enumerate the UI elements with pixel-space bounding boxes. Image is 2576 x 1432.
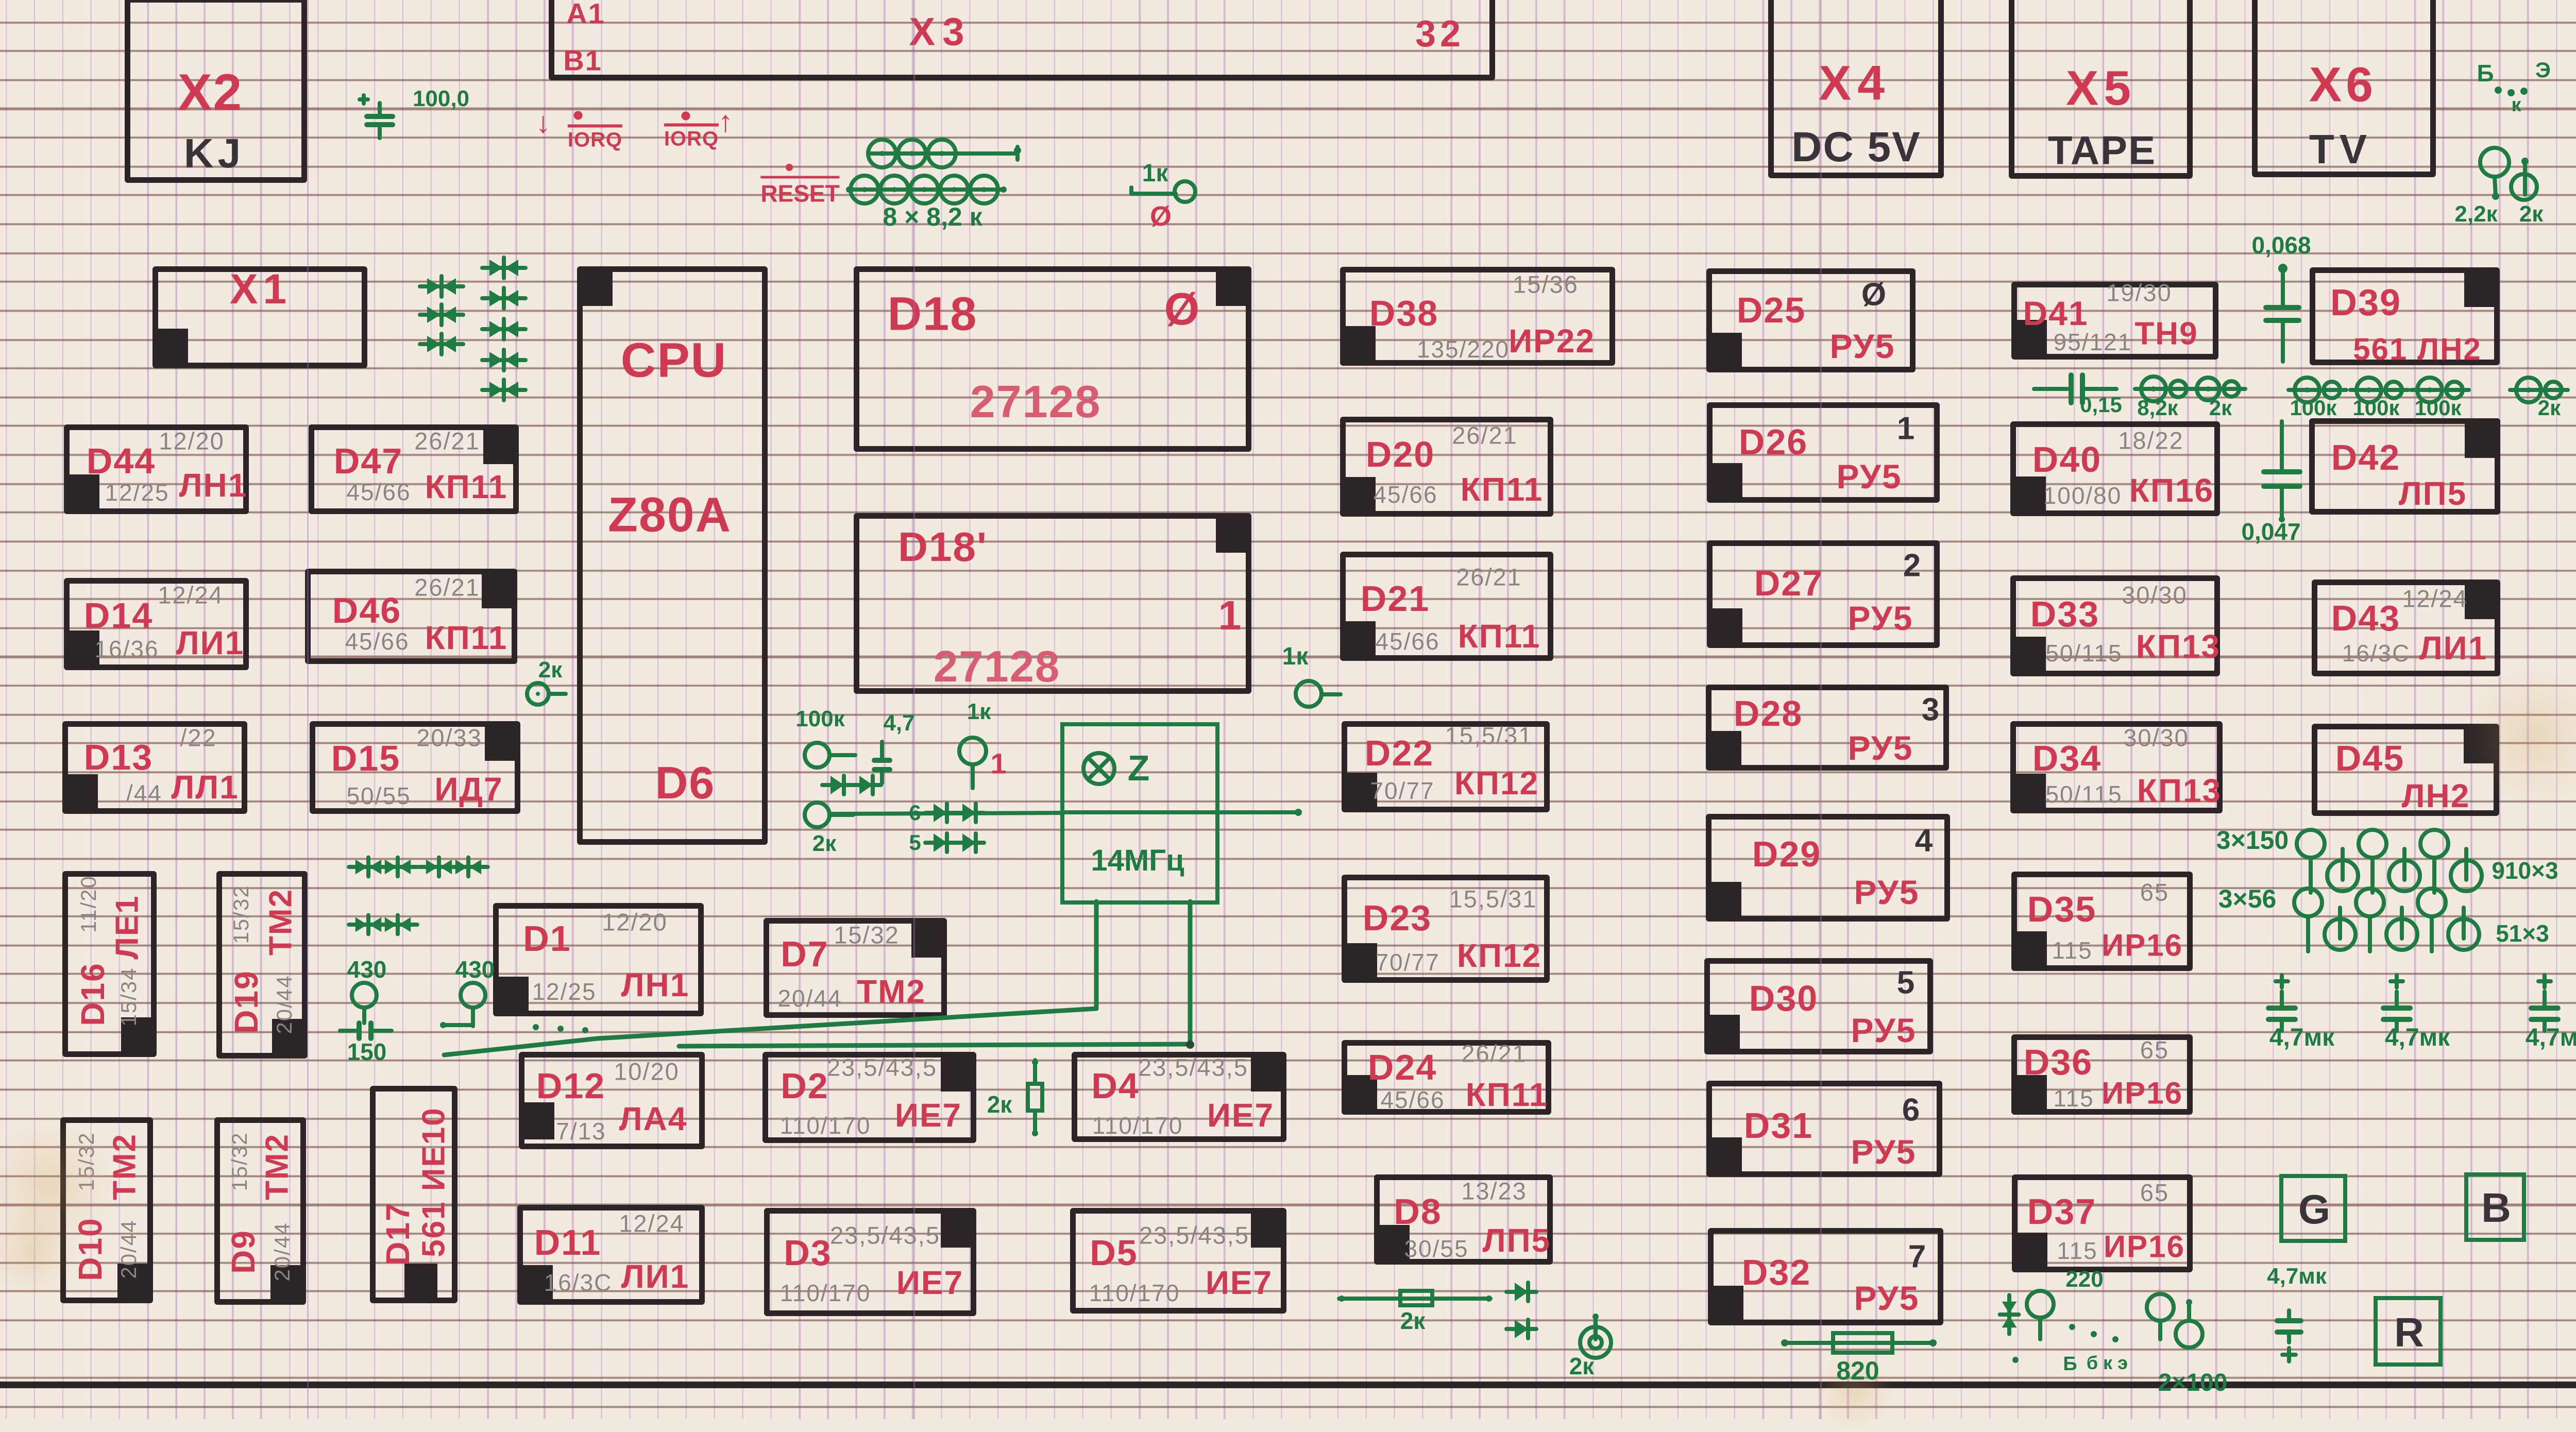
svg-text:820: 820 [1836,1356,1879,1385]
svg-text:2к: 2к [2519,201,2544,227]
svg-text:б к э: б к э [2087,1352,2128,1373]
svg-text:430: 430 [455,956,495,983]
svg-text:150: 150 [347,1038,387,1065]
svg-text:4,7мк: 4,7мк [2526,1024,2576,1051]
svg-text:100,0: 100,0 [413,86,469,111]
svg-text:2×100: 2×100 [2158,1369,2228,1396]
svg-text:2к: 2к [987,1091,1013,1118]
svg-text:Z: Z [1128,748,1150,788]
svg-text:1к: 1к [1142,160,1169,187]
svg-text:100к: 100к [2414,396,2462,420]
svg-text:2к: 2к [538,657,563,683]
svg-text:4,7мк: 4,7мк [2267,1264,2327,1289]
svg-text:14МГц: 14МГц [1091,844,1184,877]
svg-text:Б: Б [2063,1353,2077,1375]
svg-text:910×3: 910×3 [2492,857,2558,884]
svg-text:8,2к: 8,2к [2137,396,2178,420]
svg-text:4,7: 4,7 [883,710,914,736]
svg-text:51×3: 51×3 [2496,920,2549,947]
svg-text:430: 430 [347,956,387,983]
svg-text:Б: Б [2477,60,2494,87]
svg-text:100к: 100к [2290,396,2337,420]
svg-text:1к: 1к [967,699,991,724]
svg-text:4,7мк: 4,7мк [2269,1024,2335,1051]
svg-text:2к: 2к [1569,1353,1595,1379]
svg-text:2к: 2к [2538,396,2561,420]
svg-text:0,15: 0,15 [2080,393,2122,417]
svg-text:2к: 2к [812,831,837,856]
svg-text:1к: 1к [1282,643,1309,670]
svg-text:3×56: 3×56 [2218,884,2277,913]
svg-text:2,2к: 2,2к [2454,201,2498,227]
svg-text:6: 6 [909,800,921,825]
svg-text:5: 5 [909,830,921,855]
svg-text:Э: Э [2535,58,2551,82]
svg-text:100к: 100к [2352,396,2400,420]
svg-text:0,068: 0,068 [2251,232,2311,259]
svg-text:3×150: 3×150 [2216,826,2289,855]
svg-text:2к: 2к [1400,1307,1426,1334]
svg-text:100к: 100к [795,706,845,731]
svg-text:8 × 8,2 к: 8 × 8,2 к [883,202,982,231]
svg-text:220: 220 [2065,1267,2103,1292]
svg-text:к: к [2511,94,2521,116]
svg-text:2к: 2к [2209,396,2232,420]
svg-text:4,7мк: 4,7мк [2385,1024,2450,1051]
svg-text:0,047: 0,047 [2241,518,2300,545]
